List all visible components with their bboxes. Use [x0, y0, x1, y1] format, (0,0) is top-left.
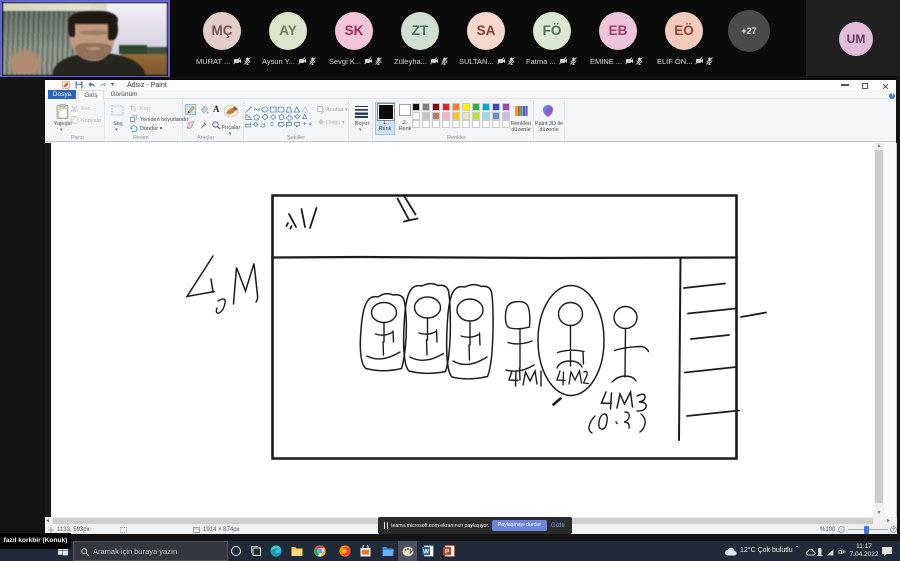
- svg-text:P: P: [445, 549, 450, 556]
- svg-text:W: W: [423, 549, 430, 556]
